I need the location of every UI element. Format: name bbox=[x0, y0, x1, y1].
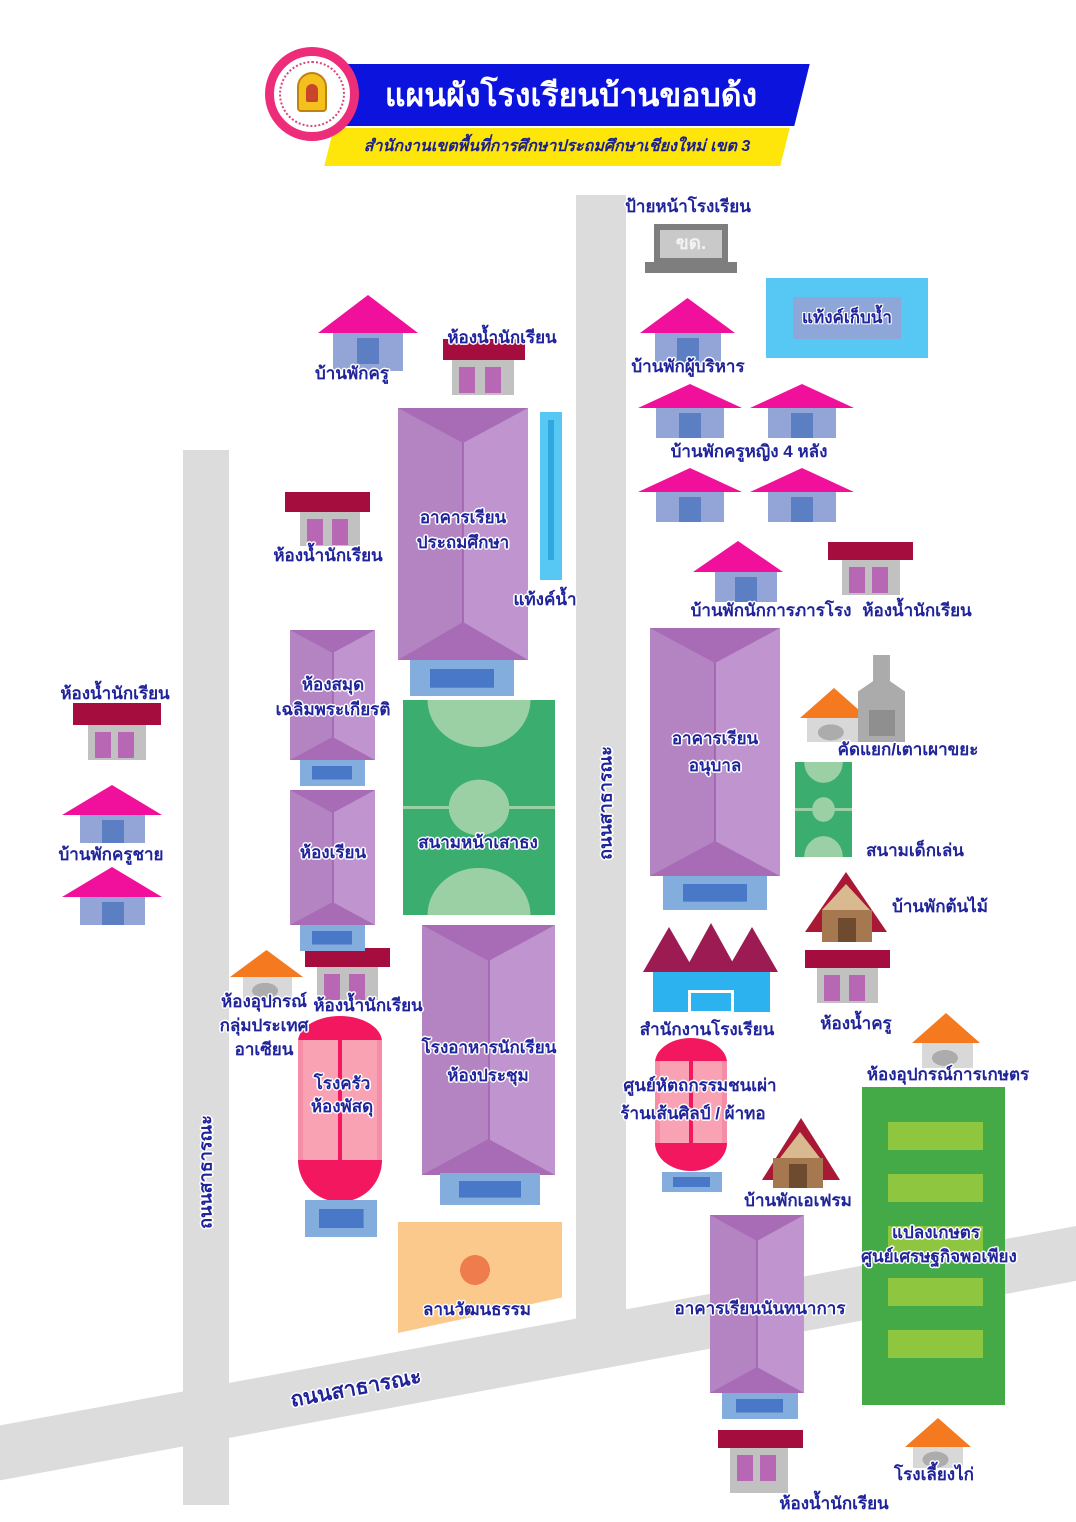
label-kindergarten-1: อาคารเรียน bbox=[672, 729, 758, 749]
asean-room-roof bbox=[230, 950, 303, 977]
label-school-office: สำนักงานโรงเรียน bbox=[640, 1020, 774, 1040]
student-toilet-east-roof bbox=[828, 542, 913, 560]
label-male-teacher-house: บ้านพักครูชาย bbox=[58, 845, 163, 865]
label-kitchen-1: โรงครัว bbox=[314, 1074, 371, 1094]
label-road-left: ถนนสาธารณะ bbox=[196, 1115, 217, 1229]
playground-field bbox=[795, 762, 852, 857]
kitchen-dome-top bbox=[298, 1016, 382, 1042]
label-craft-2: ร้านเส้นศิลป์ / ผ้าทอ bbox=[620, 1104, 765, 1124]
male-teacher-house-1-roof bbox=[62, 785, 162, 815]
male-teacher-house-2-roof bbox=[62, 867, 162, 897]
female-teacher-house-2 bbox=[768, 408, 836, 438]
library-porch bbox=[300, 760, 365, 786]
front-sign-screen: ขด. bbox=[660, 230, 722, 258]
kitchen-dome-bottom bbox=[298, 1160, 382, 1202]
female-teacher-house-1-roof bbox=[638, 384, 742, 408]
label-student-toilet-kitchen: ห้องน้ำนักเรียน bbox=[313, 996, 422, 1016]
student-toilet-south-roof bbox=[718, 1430, 803, 1448]
label-teacher-house: บ้านพักครู bbox=[315, 364, 389, 384]
kindergarten-building bbox=[650, 628, 780, 876]
office-roof-2 bbox=[684, 923, 738, 972]
label-playground: สนามเด็กเล่น bbox=[866, 841, 964, 861]
label-cafeteria-1: โรงอาหารนักเรียน bbox=[422, 1038, 557, 1058]
male-teacher-house-2 bbox=[80, 897, 145, 925]
label-water-tank-small: แท้งค์น้ำ bbox=[513, 590, 576, 610]
label-recreation-building: อาคารเรียนนันทนาการ bbox=[675, 1299, 846, 1319]
water-tank-small bbox=[540, 412, 562, 580]
janitor-house bbox=[715, 572, 777, 602]
label-female-teacher-houses: บ้านพักครูหญิง 4 หลัง bbox=[671, 442, 828, 462]
student-toilet-south bbox=[730, 1448, 788, 1493]
student-toilet-top bbox=[452, 360, 514, 395]
label-agri-equipment: ห้องอุปกรณ์การเกษตร bbox=[867, 1065, 1029, 1085]
front-sign-base bbox=[645, 262, 737, 273]
aframe-house bbox=[773, 1158, 823, 1188]
primary-building-porch bbox=[410, 660, 514, 696]
label-culture-yard: ลานวัฒนธรรม bbox=[423, 1300, 531, 1320]
road-left-vertical bbox=[183, 450, 229, 1505]
label-chicken-coop: โรงเลี้ยงไก่ bbox=[894, 1465, 974, 1485]
classroom-porch bbox=[300, 925, 365, 951]
label-cafeteria-2: ห้องประชุม bbox=[447, 1066, 529, 1086]
student-toilet-mid-roof bbox=[285, 492, 370, 512]
label-student-toilet-top: ห้องน้ำนักเรียน bbox=[447, 328, 556, 348]
label-student-toilet-east: ห้องน้ำนักเรียน bbox=[862, 601, 971, 621]
teacher-toilet bbox=[817, 968, 878, 1003]
craft-dome-bottom bbox=[655, 1143, 727, 1171]
male-teacher-house-1 bbox=[80, 815, 145, 843]
label-asean-2: กลุ่มประเทศ bbox=[220, 1016, 309, 1036]
label-kindergarten-2: อนุบาล bbox=[689, 756, 742, 776]
label-library-1: ห้องสมุด bbox=[302, 675, 364, 695]
label-farm-1: แปลงเกษตร bbox=[892, 1223, 980, 1243]
flag-field bbox=[403, 700, 555, 915]
tree-house bbox=[822, 910, 872, 942]
label-student-toilet-mid: ห้องน้ำนักเรียน bbox=[273, 546, 382, 566]
agri-equipment-roof bbox=[912, 1013, 980, 1043]
label-waste-incinerator: คัดแยก/เตาเผาขยะ bbox=[838, 740, 979, 760]
incinerator-icon bbox=[858, 655, 905, 742]
chicken-coop-roof bbox=[905, 1418, 971, 1447]
page-title: แผนผังโรงเรียนบ้านขอบด้ง bbox=[340, 64, 802, 126]
label-front-sign: ป้ายหน้าโรงเรียน bbox=[625, 197, 751, 217]
student-toilet-mid bbox=[300, 512, 360, 546]
craft-porch bbox=[662, 1172, 722, 1192]
female-teacher-house-2-roof bbox=[750, 384, 854, 408]
subtitle-banner: สำนักงานเขตพื้นที่การศึกษาประถมศึกษาเชีย… bbox=[324, 128, 789, 166]
female-teacher-house-1 bbox=[656, 408, 724, 438]
label-janitor-house: บ้านพักนักการภารโรง bbox=[691, 601, 852, 621]
female-teacher-house-4-roof bbox=[750, 468, 854, 492]
water-tank-large-label: แท้งค์เก็บน้ำ bbox=[793, 297, 901, 339]
craft-center-building bbox=[655, 1061, 727, 1145]
label-classroom: ห้องเรียน bbox=[300, 843, 366, 863]
label-asean-1: ห้องอุปกรณ์ bbox=[221, 992, 307, 1012]
farm-plot-strips bbox=[888, 1122, 983, 1368]
waste-hut bbox=[807, 718, 860, 742]
page-subtitle: สำนักงานเขตพื้นที่การศึกษาประถมศึกษาเชีย… bbox=[329, 128, 785, 166]
label-craft-1: ศูนย์หัตถกรรมชนเผ่า bbox=[623, 1076, 776, 1096]
female-teacher-house-3-roof bbox=[638, 468, 742, 492]
label-library-2: เฉลิมพระเกียรติ bbox=[276, 700, 391, 720]
label-road-right: ถนนสาธารณะ bbox=[596, 746, 617, 860]
label-student-toilet-west: ห้องน้ำนักเรียน bbox=[60, 684, 169, 704]
label-aframe-house: บ้านพักเอเฟรม bbox=[744, 1191, 852, 1211]
school-map: ถนนสาธารณะ ถนนสาธารณะ ถนนสาธารณะ แผนผังโ… bbox=[0, 0, 1076, 1522]
female-teacher-house-4 bbox=[768, 492, 836, 522]
label-kitchen-2: ห้องพัสดุ bbox=[311, 1097, 373, 1117]
janitor-house-roof bbox=[693, 541, 783, 572]
label-teacher-toilet: ห้องน้ำครู bbox=[820, 1014, 891, 1034]
title-banner: แผนผังโรงเรียนบ้านขอบด้ง bbox=[332, 64, 809, 126]
female-teacher-house-3 bbox=[656, 492, 724, 522]
office-roof-3 bbox=[726, 927, 778, 972]
teacher-toilet-roof bbox=[805, 950, 890, 968]
cafeteria-porch bbox=[440, 1173, 540, 1205]
label-admin-house: บ้านพักผู้บริหาร bbox=[631, 357, 744, 377]
recreation-porch bbox=[722, 1393, 798, 1419]
label-primary-building-1: อาคารเรียน bbox=[420, 508, 506, 528]
label-primary-building-2: ประถมศึกษา bbox=[417, 533, 509, 553]
craft-dome-top bbox=[655, 1038, 727, 1063]
label-student-toilet-south: ห้องน้ำนักเรียน bbox=[779, 1494, 888, 1514]
label-asean-3: อาเซียน bbox=[235, 1040, 294, 1060]
kindergarten-porch bbox=[663, 876, 767, 910]
school-office-door bbox=[688, 990, 734, 1014]
label-flag-field: สนามหน้าเสาธง bbox=[418, 833, 538, 853]
admin-house-roof bbox=[640, 298, 735, 333]
teacher-house-roof bbox=[318, 295, 418, 333]
office-roof-1 bbox=[643, 927, 695, 972]
student-toilet-west bbox=[88, 725, 146, 760]
label-farm-2: ศูนย์เศรษฐกิจพอเพียง bbox=[861, 1247, 1017, 1267]
student-toilet-west-roof bbox=[73, 703, 161, 725]
kitchen-porch bbox=[305, 1200, 377, 1237]
student-toilet-east bbox=[842, 560, 900, 595]
logo-figure-icon bbox=[306, 84, 318, 102]
waste-hut-roof bbox=[800, 688, 868, 718]
label-tree-house: บ้านพักต้นไม้ bbox=[892, 897, 988, 917]
